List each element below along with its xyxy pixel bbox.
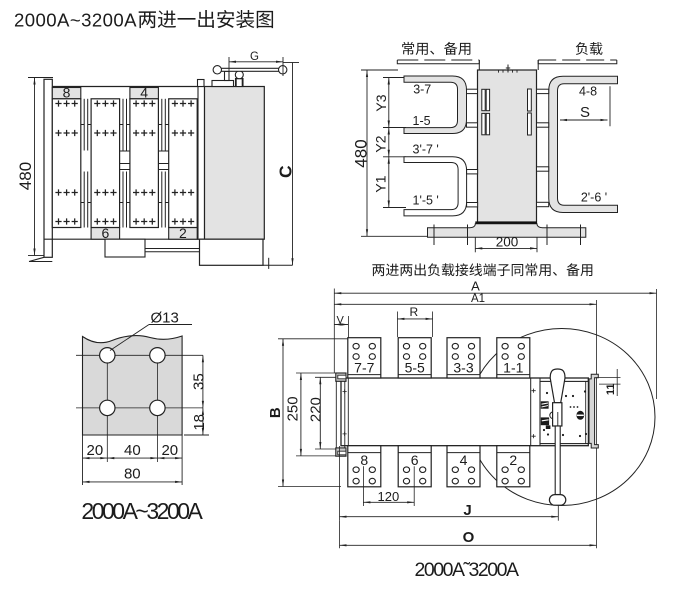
svg-text:20: 20 xyxy=(87,442,104,459)
svg-text:250: 250 xyxy=(285,396,302,421)
svg-text:2'-6 ': 2'-6 ' xyxy=(581,191,607,205)
svg-text:18: 18 xyxy=(191,414,208,431)
svg-text:8: 8 xyxy=(360,452,368,468)
svg-text:4: 4 xyxy=(460,452,468,468)
svg-text:A: A xyxy=(471,279,480,294)
svg-text:35: 35 xyxy=(191,373,208,390)
svg-text:4-8: 4-8 xyxy=(579,85,597,99)
svg-text:Y3: Y3 xyxy=(373,94,389,111)
svg-text:3'-7 ': 3'-7 ' xyxy=(413,143,439,157)
svg-text:200: 200 xyxy=(496,235,519,250)
svg-text:Ø13: Ø13 xyxy=(151,310,179,327)
svg-text:6: 6 xyxy=(101,225,109,241)
svg-text:2: 2 xyxy=(509,452,517,468)
svg-text:80: 80 xyxy=(124,466,141,483)
svg-text:1-5: 1-5 xyxy=(413,114,431,128)
svg-text:3-3: 3-3 xyxy=(453,360,473,376)
svg-text:J: J xyxy=(463,502,471,519)
svg-text:1-1: 1-1 xyxy=(503,360,523,376)
svg-text:3-7: 3-7 xyxy=(413,83,431,97)
svg-text:40: 40 xyxy=(124,442,141,459)
svg-text:S: S xyxy=(580,104,590,121)
svg-text:220: 220 xyxy=(308,397,325,422)
svg-text:2000A~3200A: 2000A~3200A xyxy=(14,10,137,31)
svg-text:2000A˜3200A: 2000A˜3200A xyxy=(415,559,520,581)
svg-text:11: 11 xyxy=(605,383,617,395)
svg-text:C: C xyxy=(275,165,295,178)
svg-text:7-7: 7-7 xyxy=(354,360,374,376)
svg-text:120: 120 xyxy=(378,489,400,504)
svg-text:2000A~3200A: 2000A~3200A xyxy=(81,498,203,524)
svg-text:480: 480 xyxy=(16,162,35,190)
svg-text:20: 20 xyxy=(161,442,178,459)
svg-text:Y1: Y1 xyxy=(373,175,389,192)
svg-text:G: G xyxy=(250,51,259,63)
svg-text:6: 6 xyxy=(411,452,419,468)
svg-text:R: R xyxy=(409,305,418,319)
svg-text:O: O xyxy=(463,529,475,546)
svg-text:4: 4 xyxy=(140,85,148,101)
svg-text:V: V xyxy=(337,314,345,326)
svg-text:B: B xyxy=(267,407,284,418)
svg-text:480: 480 xyxy=(351,139,370,167)
svg-text:8: 8 xyxy=(63,85,71,101)
svg-text:2: 2 xyxy=(179,225,187,241)
svg-text:Y2: Y2 xyxy=(373,135,389,152)
svg-text:5-5: 5-5 xyxy=(405,360,425,376)
svg-text:A1: A1 xyxy=(471,293,485,305)
svg-text:1'-5 ': 1'-5 ' xyxy=(413,194,439,208)
